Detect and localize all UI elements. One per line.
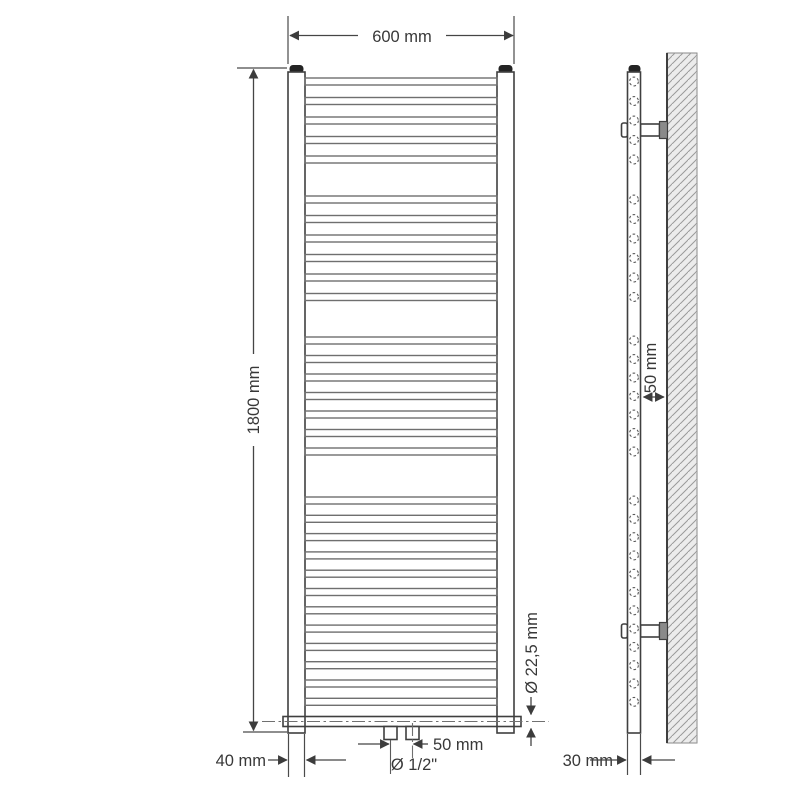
rung (305, 356, 497, 363)
side-view: 50 mm 30 mm (563, 53, 697, 775)
rung (305, 117, 497, 124)
tube-diameter-label: Ø 22,5 mm (523, 612, 541, 694)
profile-depth-label: 30 mm (563, 752, 613, 770)
rung (305, 607, 497, 614)
rung (305, 337, 497, 344)
wall-distance-label: 50 mm (642, 343, 660, 393)
rung (305, 156, 497, 163)
bracket-clamp (622, 624, 628, 638)
rung (305, 515, 497, 522)
rung (305, 196, 497, 203)
foot-width-label: 40 mm (216, 752, 266, 770)
wall-hatching (667, 53, 697, 743)
rung (305, 374, 497, 381)
drawing-canvas: 600 mm 1800 mm 50 mm Ø 1/2" 40 mm Ø 22 (0, 0, 800, 800)
bracket-wall-plate (660, 623, 668, 640)
rung (305, 411, 497, 418)
right-vertical-tube (497, 72, 514, 733)
bracket-clamp (622, 123, 628, 137)
rung (305, 235, 497, 242)
left-vertical-tube (288, 72, 305, 733)
side-vertical-tube (628, 72, 641, 733)
rung (305, 552, 497, 559)
rung (305, 625, 497, 632)
rung (305, 497, 497, 504)
bracket-wall-plate (660, 122, 668, 139)
rung (305, 534, 497, 541)
rung (305, 643, 497, 650)
rung (305, 255, 497, 262)
connection-thread-label: Ø 1/2" (391, 756, 437, 774)
horizontal-rungs (305, 78, 497, 705)
rung (305, 570, 497, 577)
rung (305, 680, 497, 687)
height-dimension-label: 1800 mm (245, 366, 263, 435)
front-view: 600 mm 1800 mm 50 mm Ø 1/2" 40 mm Ø 22 (216, 16, 549, 777)
rung (305, 274, 497, 281)
rung (305, 430, 497, 437)
width-dimension-label: 600 mm (372, 28, 432, 46)
bracket-arm (641, 625, 660, 637)
rung (305, 393, 497, 400)
rung (305, 78, 497, 85)
rung (305, 216, 497, 223)
rung (305, 698, 497, 705)
connection-spacing-label: 50 mm (433, 736, 483, 754)
left-connection-stub (384, 727, 397, 740)
rung (305, 98, 497, 105)
rung (305, 662, 497, 669)
rung (305, 448, 497, 455)
radiator-dimension-drawing: 600 mm 1800 mm 50 mm Ø 1/2" 40 mm Ø 22 (0, 0, 800, 800)
rung (305, 137, 497, 144)
bracket-arm (641, 124, 660, 136)
rung (305, 294, 497, 301)
rung (305, 589, 497, 596)
